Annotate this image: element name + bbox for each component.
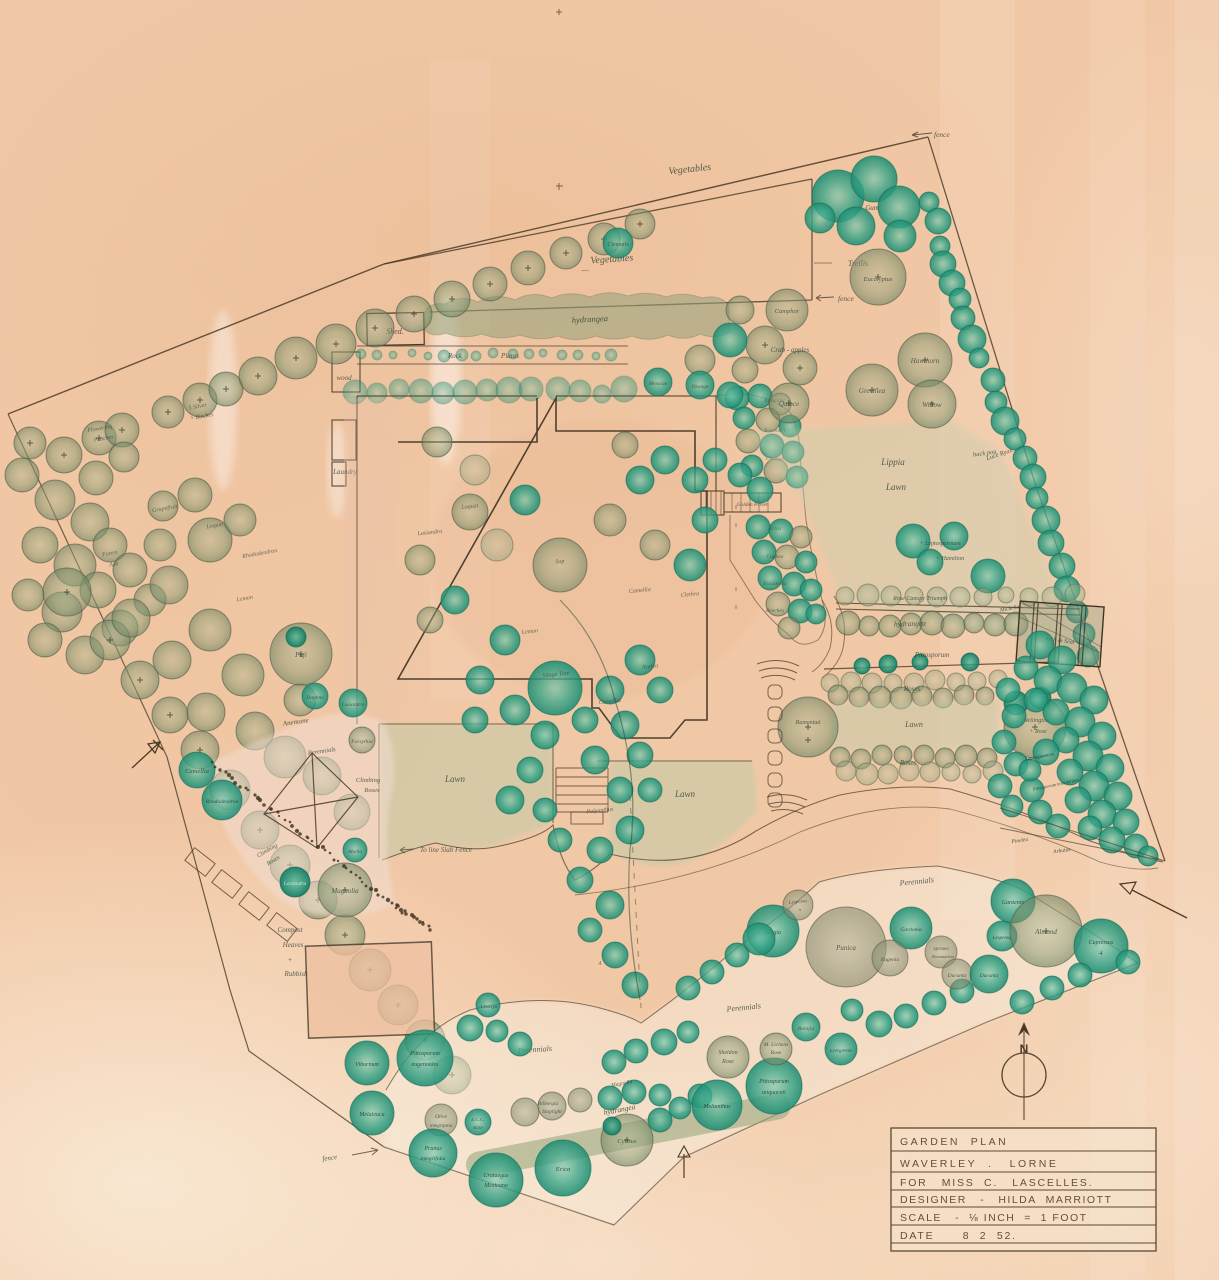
svg-text:Stoplight: Stoplight [542,1109,562,1115]
svg-text:Hawthorn: Hawthorn [910,357,940,365]
svg-text:SCALE - ⅛ INCH = 1 FOOT: SCALE - ⅛ INCH = 1 FOOT [900,1212,1088,1224]
svg-text:Eucalyptus: Eucalyptus [863,276,893,283]
svg-text:Abelia: Abelia [347,849,363,855]
svg-text:Spiraea: Spiraea [933,947,949,952]
svg-text:Beeches: Beeches [766,608,784,614]
svg-text:FOR MISS C. LASCELLES.: FOR MISS C. LASCELLES. [900,1177,1093,1189]
svg-text:Melianthus: Melianthus [703,1104,732,1110]
svg-text:Duranta: Duranta [979,973,999,979]
svg-text:Lawn: Lawn [674,789,696,799]
svg-text:Gordonia: Gordonia [900,927,921,933]
svg-text:Daphne: Daphne [305,695,324,701]
svg-text:Orange: Orange [692,384,709,390]
svg-text:4: 4 [1100,950,1103,957]
svg-text:Camphor: Camphor [775,308,800,315]
svg-text:Rose Canopy Triumph: Rose Canopy Triumph [892,596,947,602]
svg-text:fence: fence [838,294,854,303]
svg-text:Lasiandra: Lasiandra [283,881,307,887]
svg-text:Climbing: Climbing [356,777,381,784]
svg-text:Compost: Compost [278,926,304,934]
svg-text:+ Leptospermum: + Leptospermum [919,541,961,547]
svg-text:DESIGNER - HILDA MARRIOTT: DESIGNER - HILDA MARRIOTT [900,1194,1112,1206]
svg-text:Rubbish: Rubbish [284,970,308,978]
svg-text:Camellia: Camellia [185,768,209,775]
svg-text:Rock: Rock [447,352,463,360]
svg-text:Fuji: Fuji [294,651,307,659]
svg-text:Lasiandra: Lasiandra [341,702,365,708]
svg-text:integrifolia: integrifolia [430,1124,453,1129]
svg-text:+ Hamilton: + Hamilton [936,556,964,562]
svg-text:Lespensa: Lespensa [992,936,1012,941]
svg-text:eugenoides: eugenoides [412,1062,440,1068]
svg-text:Magnolia: Magnolia [330,887,359,895]
svg-text:N: N [1020,1042,1029,1056]
svg-text:Quince: Quince [779,400,799,408]
svg-text:+: + [288,956,293,964]
svg-text:fence: fence [934,130,950,139]
svg-text:Olive: Olive [435,1114,447,1120]
svg-text:Clematis: Clematis [607,242,629,248]
svg-text:Escallonia: Escallonia [762,581,787,587]
svg-text:Crab - apples: Crab - apples [771,346,810,354]
svg-text:Forsythia: Forsythia [350,739,373,745]
svg-text:To line Slab Fence: To line Slab Fence [420,846,472,854]
svg-text:Sheldon: Sheldon [718,1050,737,1056]
svg-text:Duranta: Duranta [947,973,967,979]
svg-text:Rosemarina: Rosemarina [931,954,954,959]
svg-text:Ramontad: Ramontad [795,720,822,726]
svg-text:integrifolia: integrifolia [421,1155,446,1162]
svg-text:Lawn: Lawn [885,482,907,492]
svg-text:Lawn: Lawn [904,720,923,729]
svg-text:hydrangea: hydrangea [894,618,927,628]
svg-text:M. Lichens: M. Lichens [763,1042,788,1048]
svg-text:Almond: Almond [1034,928,1057,936]
svg-text:Cuphea: Cuphea [766,554,783,560]
svg-text:Crataegus: Crataegus [483,1173,509,1179]
svg-text:Cytisus: Cytisus [617,1138,637,1145]
svg-text:Plants: Plants [500,352,519,360]
svg-text:DATE 8 2 52.: DATE 8 2 52. [900,1230,1017,1242]
svg-text:E.C.C.: E.C.C. [470,1118,484,1123]
svg-text:Pittosporum: Pittosporum [914,651,950,659]
svg-text:Erica: Erica [768,526,781,532]
svg-text:Choisya: Choisya [481,1005,498,1010]
svg-text:Sop: Sop [555,559,565,566]
svg-text:+ Rose: + Rose [1029,729,1047,735]
svg-text:Punica: Punica [835,944,856,952]
svg-text:Lawn: Lawn [444,774,466,784]
svg-text:GARDEN PLAN: GARDEN PLAN [900,1136,1008,1148]
svg-text:Cupressus: Cupressus [1089,940,1114,946]
svg-text:Mexican: Mexican [648,381,668,387]
svg-text:Rose: Rose [472,1126,484,1131]
svg-text:Roses: Roses [903,685,921,693]
svg-text:Mexicana: Mexicana [483,1183,508,1189]
svg-text:Prunus: Prunus [423,1146,442,1152]
svg-text:Rose: Rose [721,1059,734,1065]
svg-text:Rhododendron: Rhododendron [205,799,239,805]
svg-text:Pittosporum: Pittosporum [758,1079,789,1085]
svg-text:Gum: Gum [865,204,879,212]
svg-text:hydrangea: hydrangea [571,313,608,325]
svg-text:Pittosporum: Pittosporum [409,1051,440,1057]
svg-text:WAVERLEY . LORNE: WAVERLEY . LORNE [900,1158,1058,1170]
svg-text:Lippia: Lippia [880,457,905,467]
svg-text:Heaves: Heaves [282,941,304,949]
svg-text:Viburnum: Viburnum [355,1062,379,1068]
svg-text:Bilbergia: Bilbergia [538,1101,559,1107]
svg-text:Erica: Erica [555,1166,570,1173]
svg-text:Evergreens: Evergreens [829,1049,852,1054]
svg-text:Willow: Willow [922,401,942,409]
svg-text:Melaleuca: Melaleuca [358,1112,384,1118]
svg-text:Grevillea: Grevillea [859,387,886,395]
svg-text:Eugenia: Eugenia [880,957,900,963]
svg-text:—: — [580,265,589,274]
svg-text:Rose: Rose [770,1050,782,1056]
svg-text:Roses: Roses [363,787,380,794]
svg-text:Robijia: Robijia [797,1026,814,1032]
svg-text:unquarati: unquarati [762,1090,786,1096]
svg-text:Roses: Roses [899,759,917,767]
